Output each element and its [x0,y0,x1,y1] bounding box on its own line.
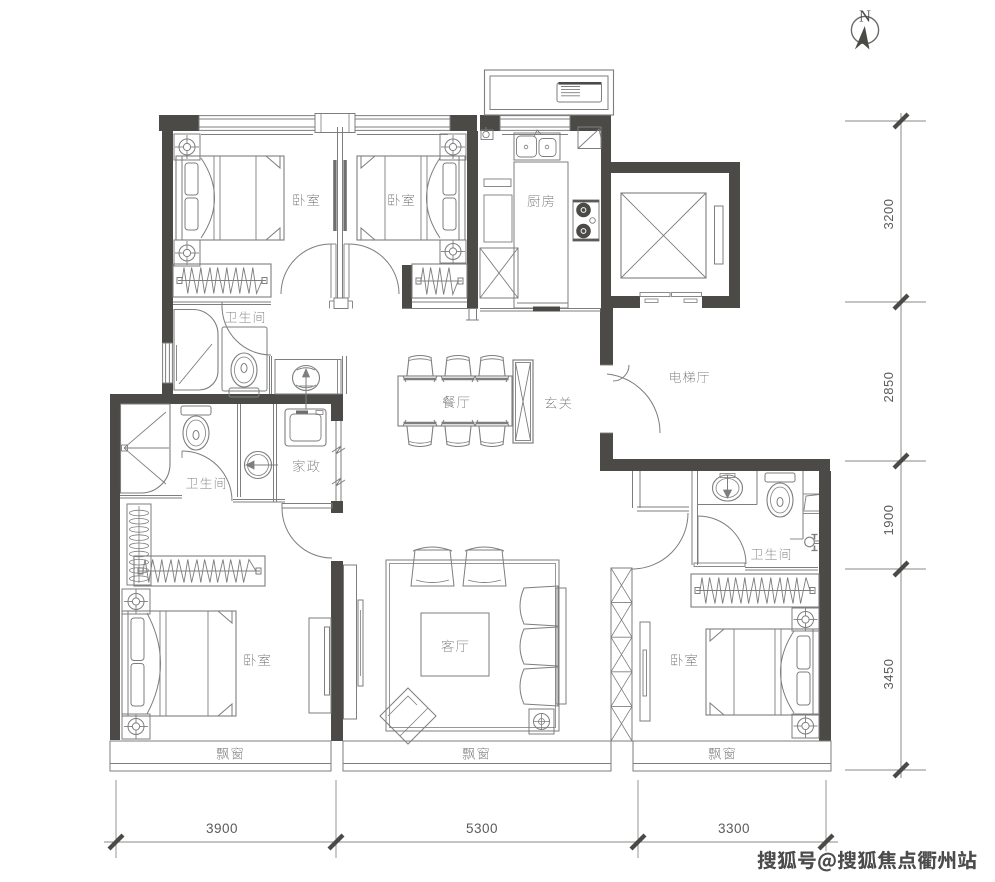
svg-text:5300: 5300 [466,821,498,836]
svg-text:3300: 3300 [718,821,750,836]
svg-text:3450: 3450 [881,659,896,690]
svg-text:N: N [859,7,871,26]
svg-text:2850: 2850 [881,372,896,403]
svg-text:1900: 1900 [881,505,896,536]
svg-text:3200: 3200 [881,199,896,230]
svg-text:3900: 3900 [206,821,238,836]
